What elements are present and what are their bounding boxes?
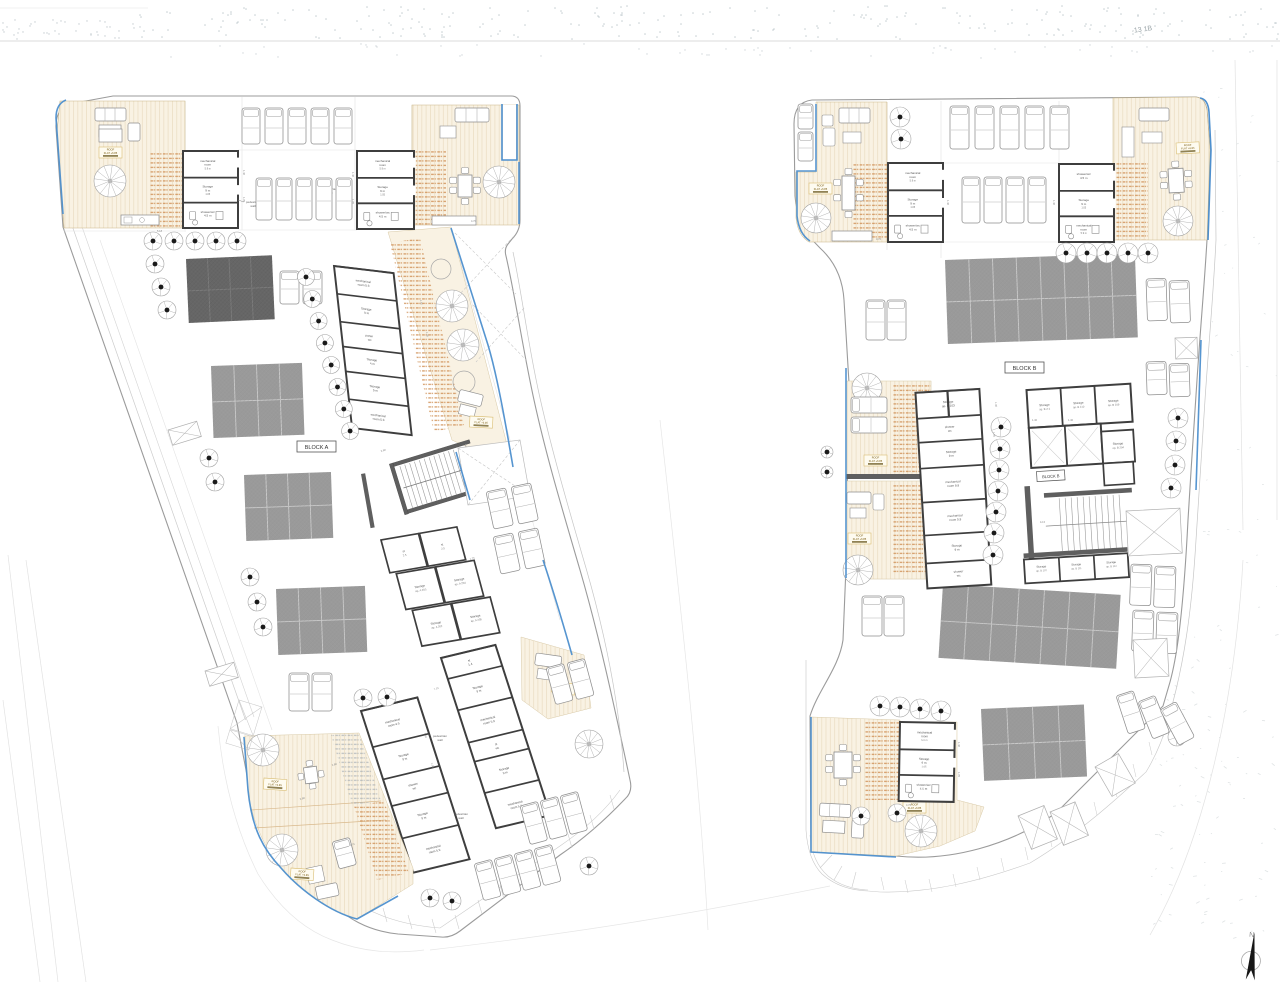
svg-text:9 m: 9 m xyxy=(954,547,960,551)
svg-text:4.5 m: 4.5 m xyxy=(379,214,387,218)
svg-text:1.40: 1.40 xyxy=(957,742,961,748)
svg-text:9 m: 9 m xyxy=(205,188,211,192)
svg-text:1.40: 1.40 xyxy=(994,402,998,408)
svg-text:1.40: 1.40 xyxy=(946,200,950,206)
svg-text:Storage: Storage xyxy=(1071,562,1081,567)
svg-text:room 5.9: room 5.9 xyxy=(949,517,961,522)
svg-text:FLAT +6.85: FLAT +6.85 xyxy=(474,420,488,425)
svg-text:1.05: 1.05 xyxy=(380,194,385,197)
svg-text:5.9 m: 5.9 m xyxy=(921,739,927,742)
svg-text:4.70: 4.70 xyxy=(471,219,477,223)
svg-text:BLOCK B: BLOCK B xyxy=(1013,366,1037,372)
svg-text:1.05: 1.05 xyxy=(205,193,210,196)
svg-text:9 m: 9 m xyxy=(921,761,927,765)
svg-text:FLAT +6.85: FLAT +6.85 xyxy=(104,151,118,155)
svg-text:wall: wall xyxy=(458,816,464,820)
svg-text:Storage: Storage xyxy=(1036,564,1046,569)
svg-text:BLOCK A: BLOCK A xyxy=(305,445,329,451)
svg-text:ap. B 109: ap. B 109 xyxy=(1108,402,1120,407)
svg-text:9 m: 9 m xyxy=(910,201,916,205)
svg-text:1.05: 1.05 xyxy=(992,432,996,438)
svg-text:room: room xyxy=(379,163,386,167)
svg-text:1.05: 1.05 xyxy=(351,199,355,205)
svg-text:1.40: 1.40 xyxy=(351,172,355,178)
svg-text:4.5 m: 4.5 m xyxy=(1080,176,1088,180)
svg-text:FLAT +6.85: FLAT +6.85 xyxy=(1181,146,1195,151)
svg-text:4.5 m: 4.5 m xyxy=(204,214,212,218)
svg-text:9 m: 9 m xyxy=(1081,202,1087,206)
svg-text:Storage: Storage xyxy=(1039,403,1050,408)
svg-text:5.9 m: 5.9 m xyxy=(205,167,211,170)
svg-text:Storage: Storage xyxy=(1073,401,1084,406)
svg-text:room: room xyxy=(204,163,211,167)
svg-text:FLAT +6.85: FLAT +6.85 xyxy=(853,537,867,541)
svg-text:1.05: 1.05 xyxy=(922,765,928,768)
svg-text:room: room xyxy=(909,175,916,179)
svg-text:1.40: 1.40 xyxy=(242,170,246,176)
svg-text:Storage: Storage xyxy=(1113,441,1124,446)
svg-text:5.18: 5.18 xyxy=(157,229,163,233)
svg-text:9 m: 9 m xyxy=(949,454,955,458)
svg-text:5.9 m: 5.9 m xyxy=(380,168,386,171)
svg-text:room 9.9: room 9.9 xyxy=(947,483,959,488)
svg-text:1.40: 1.40 xyxy=(1052,200,1056,206)
svg-text:room: room xyxy=(1080,227,1087,231)
svg-text:4.5 m: 4.5 m xyxy=(909,227,917,231)
svg-text:1.05: 1.05 xyxy=(242,197,246,203)
svg-text:4.76: 4.76 xyxy=(906,803,912,807)
svg-text:FLAT +6.85: FLAT +6.85 xyxy=(869,459,883,463)
svg-text:1.05: 1.05 xyxy=(910,206,915,209)
svg-text:ap. B 110: ap. B 110 xyxy=(1073,405,1085,410)
svg-text:ap. B 2-1: ap. B 2-1 xyxy=(1039,407,1051,412)
svg-text:4.70: 4.70 xyxy=(876,237,882,241)
svg-text:4.5 m: 4.5 m xyxy=(920,787,928,791)
svg-text:FLAT +6.85: FLAT +6.85 xyxy=(814,187,828,191)
svg-text:1.40: 1.40 xyxy=(1068,418,1074,422)
svg-text:12.6: 12.6 xyxy=(1040,520,1046,524)
svg-text:1.05: 1.05 xyxy=(1081,207,1086,210)
svg-text:9 m: 9 m xyxy=(380,189,386,193)
svg-text:1.40: 1.40 xyxy=(1032,418,1038,422)
svg-text:N: N xyxy=(1249,932,1255,939)
svg-text:5.9 m: 5.9 m xyxy=(1081,232,1087,235)
svg-text:Storage: Storage xyxy=(1106,560,1116,565)
svg-text:Storage: Storage xyxy=(1108,398,1119,403)
svg-text:1.05: 1.05 xyxy=(957,772,961,778)
svg-text:wall: wall xyxy=(437,738,443,742)
svg-text:room: room xyxy=(921,734,928,738)
svg-text:wall: wall xyxy=(250,204,256,208)
svg-text:ap. B 204: ap. B 204 xyxy=(1112,445,1124,450)
svg-text:5.9 m: 5.9 m xyxy=(910,180,916,183)
